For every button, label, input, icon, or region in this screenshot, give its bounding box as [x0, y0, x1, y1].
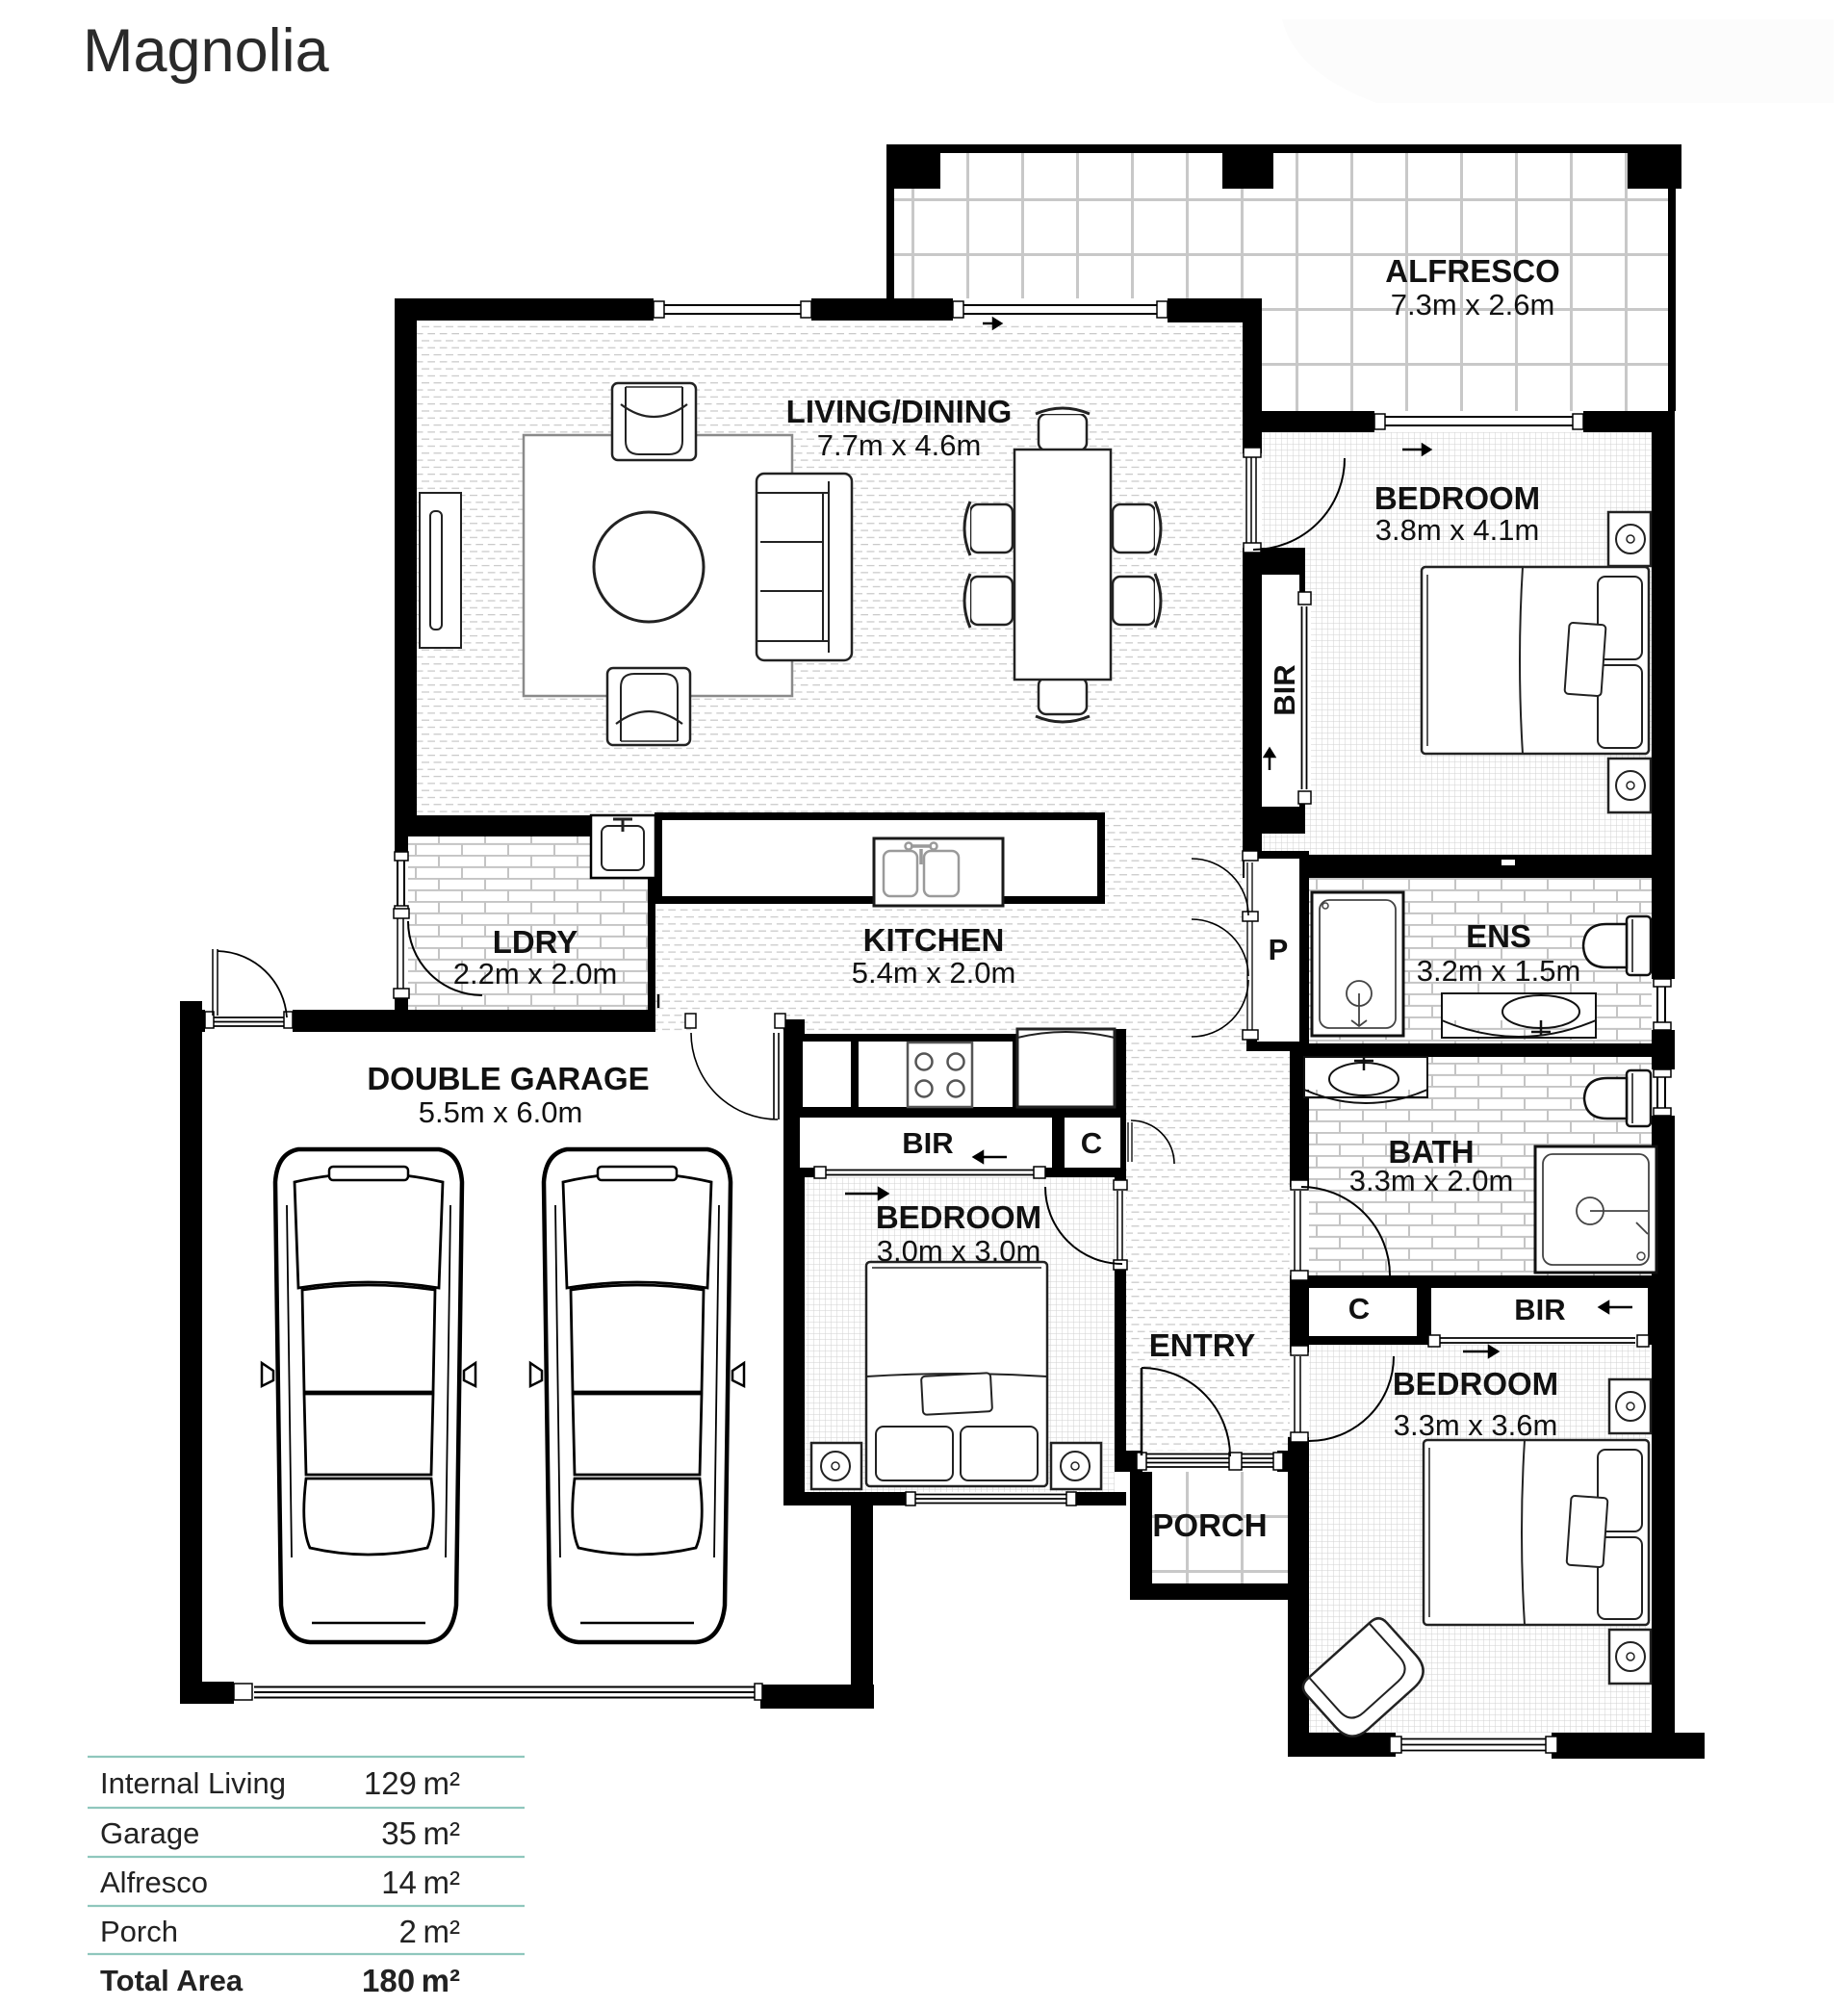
- svg-text:129 m²: 129 m²: [364, 1765, 460, 1801]
- svg-text:KITCHEN: KITCHEN: [863, 922, 1005, 958]
- svg-text:Internal Living: Internal Living: [100, 1766, 286, 1800]
- svg-text:2.2m x 2.0m: 2.2m x 2.0m: [453, 957, 618, 991]
- svg-text:3.3m x 3.6m: 3.3m x 3.6m: [1394, 1408, 1558, 1442]
- svg-text:BIR: BIR: [902, 1126, 953, 1160]
- svg-text:7.7m x 4.6m: 7.7m x 4.6m: [817, 428, 982, 462]
- svg-text:BIR: BIR: [1268, 664, 1301, 715]
- svg-text:Garage: Garage: [100, 1816, 199, 1850]
- svg-text:Total Area: Total Area: [100, 1964, 244, 1997]
- svg-text:C: C: [1348, 1292, 1370, 1325]
- svg-text:LDRY: LDRY: [493, 924, 578, 960]
- svg-text:5.4m x 2.0m: 5.4m x 2.0m: [852, 956, 1016, 990]
- svg-text:PORCH: PORCH: [1152, 1507, 1267, 1543]
- svg-text:Alfresco: Alfresco: [100, 1865, 208, 1899]
- svg-text:Porch: Porch: [100, 1915, 178, 1948]
- svg-text:BEDROOM: BEDROOM: [1374, 480, 1540, 516]
- svg-text:3.8m x 4.1m: 3.8m x 4.1m: [1375, 513, 1540, 547]
- svg-text:ENTRY: ENTRY: [1149, 1327, 1256, 1363]
- svg-text:BEDROOM: BEDROOM: [876, 1199, 1041, 1235]
- svg-text:2 m²: 2 m²: [399, 1914, 460, 1949]
- svg-text:7.3m x 2.6m: 7.3m x 2.6m: [1391, 288, 1555, 322]
- svg-text:Magnolia: Magnolia: [83, 17, 330, 85]
- svg-text:14 m²: 14 m²: [381, 1865, 460, 1900]
- svg-text:BIR: BIR: [1514, 1293, 1565, 1326]
- svg-text:ENS: ENS: [1466, 918, 1531, 954]
- svg-text:C: C: [1081, 1126, 1102, 1160]
- svg-text:5.5m x 6.0m: 5.5m x 6.0m: [419, 1095, 583, 1129]
- svg-text:3.2m x 1.5m: 3.2m x 1.5m: [1417, 954, 1581, 988]
- svg-text:DOUBLE GARAGE: DOUBLE GARAGE: [367, 1061, 649, 1096]
- svg-text:BEDROOM: BEDROOM: [1393, 1366, 1558, 1402]
- svg-text:35 m²: 35 m²: [381, 1815, 460, 1851]
- svg-text:3.0m x 3.0m: 3.0m x 3.0m: [877, 1234, 1041, 1268]
- svg-text:3.3m x 2.0m: 3.3m x 2.0m: [1349, 1164, 1514, 1197]
- svg-text:P: P: [1269, 933, 1289, 966]
- svg-text:180 m²: 180 m²: [362, 1963, 460, 1998]
- svg-text:ALFRESCO: ALFRESCO: [1385, 253, 1560, 289]
- svg-text:LIVING/DINING: LIVING/DINING: [786, 394, 1013, 429]
